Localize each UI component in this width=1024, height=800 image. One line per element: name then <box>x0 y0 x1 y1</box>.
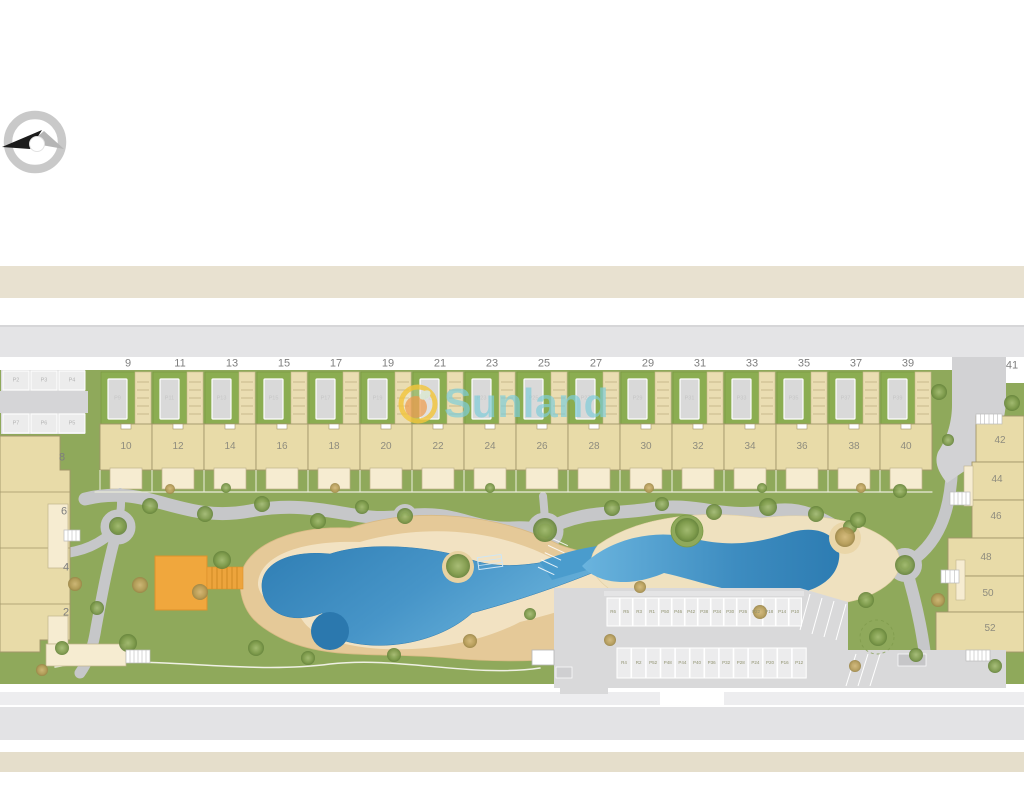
entry-notch <box>849 424 859 429</box>
tree <box>634 581 646 593</box>
parking-stall <box>792 648 806 678</box>
tree <box>301 651 315 665</box>
parking-stall <box>659 598 671 626</box>
tree <box>213 551 231 569</box>
parking-stall <box>59 371 85 390</box>
entry-notch <box>329 424 339 429</box>
tree <box>644 483 654 493</box>
entry-notch <box>121 424 131 429</box>
unit-block <box>516 424 568 470</box>
parking-stall <box>646 648 660 678</box>
parking-stall <box>661 648 675 678</box>
tree <box>942 434 954 446</box>
entry-notch <box>745 424 755 429</box>
parking-stall <box>59 414 85 433</box>
parking-pad <box>368 379 387 419</box>
parking-stall <box>776 598 788 626</box>
parking-stall <box>646 598 658 626</box>
tree <box>387 648 401 662</box>
terrace <box>578 468 610 489</box>
tree <box>463 634 477 648</box>
parking-stall <box>711 598 723 626</box>
parking-pad <box>316 379 335 419</box>
tree <box>835 527 855 547</box>
tree <box>869 628 887 646</box>
parking-stall <box>31 414 57 433</box>
entry-notch <box>225 424 235 429</box>
unit-block <box>412 424 464 470</box>
parking-stall <box>3 414 29 433</box>
parking-pad <box>212 379 231 419</box>
unit-block <box>256 424 308 470</box>
unit-block <box>724 424 776 470</box>
parking-pad <box>264 379 283 419</box>
tree <box>109 517 127 535</box>
road-edge-line <box>0 325 1024 327</box>
parking-stall <box>734 648 748 678</box>
tree <box>757 483 767 493</box>
tree <box>931 384 947 400</box>
lot-entrance <box>560 686 608 694</box>
terrace <box>526 468 558 489</box>
unit-block <box>152 424 204 470</box>
unit-block <box>100 424 152 470</box>
north-arrow-icon <box>0 103 72 180</box>
entry-notch <box>173 424 183 429</box>
parking-stall <box>748 648 762 678</box>
unit-block <box>620 424 672 470</box>
unit-block <box>880 424 932 470</box>
parking-stall <box>737 598 749 626</box>
tree <box>909 648 923 662</box>
tree <box>485 483 495 493</box>
tree <box>931 593 945 607</box>
tree <box>68 577 82 591</box>
corner-white <box>1006 357 1024 383</box>
entry-notch <box>641 424 651 429</box>
parking-stall <box>685 598 697 626</box>
tree <box>675 518 699 542</box>
parking-stall <box>31 371 57 390</box>
parking-pad <box>108 379 127 419</box>
tree <box>36 664 48 676</box>
unit-block <box>464 424 516 470</box>
terrace <box>422 468 454 489</box>
tree <box>132 577 148 593</box>
tree <box>55 641 69 655</box>
kiosk <box>556 667 572 678</box>
unit-block <box>308 424 360 470</box>
parking-stall <box>789 598 801 626</box>
entry-notch <box>433 424 443 429</box>
tree <box>850 512 866 528</box>
tree <box>604 500 620 516</box>
terrace <box>890 468 922 489</box>
parking-stall <box>620 598 632 626</box>
road-bottom-gray <box>0 707 1024 740</box>
unit-block <box>672 424 724 470</box>
entry-notch <box>537 424 547 429</box>
parking-stall <box>698 598 710 626</box>
tree <box>893 484 907 498</box>
tree <box>221 483 231 493</box>
parking-stall <box>724 598 736 626</box>
terrace <box>786 468 818 489</box>
tree <box>1004 395 1020 411</box>
tree <box>355 500 369 514</box>
site-plan-canvas: 41 9P91011P111213P131415P151617P171819P1… <box>0 0 1024 800</box>
tree <box>849 660 861 672</box>
parking-stall <box>632 648 646 678</box>
tree <box>533 518 557 542</box>
entry-notch <box>277 424 287 429</box>
entry-notch <box>589 424 599 429</box>
entry-notch <box>485 424 495 429</box>
tree <box>119 634 137 652</box>
playground-area <box>155 556 207 610</box>
tree <box>90 601 104 615</box>
tree <box>397 508 413 524</box>
tree <box>706 504 722 520</box>
road-top-beige <box>0 266 1024 298</box>
unit-block <box>828 424 880 470</box>
site-plan <box>0 0 1024 800</box>
parking-stall <box>617 648 631 678</box>
kiosk <box>532 650 554 665</box>
entry-notch <box>381 424 391 429</box>
parking-stall <box>675 648 689 678</box>
terrace <box>370 468 402 489</box>
tree <box>165 484 175 494</box>
parking-pad <box>524 379 543 419</box>
parking-pad <box>888 379 907 419</box>
tree <box>759 498 777 516</box>
parking-stall <box>672 598 684 626</box>
tree <box>858 592 874 608</box>
terrace <box>266 468 298 489</box>
parking-pad <box>160 379 179 419</box>
tree <box>330 483 340 493</box>
tree <box>192 584 208 600</box>
tree <box>753 605 767 619</box>
parking-pad <box>784 379 803 419</box>
parking-pad <box>576 379 595 419</box>
parking-stall <box>705 648 719 678</box>
entry-notch <box>901 424 911 429</box>
deep-pool-circle <box>311 612 349 650</box>
tree <box>310 513 326 529</box>
parking-pad <box>628 379 647 419</box>
parking-pad <box>732 379 751 419</box>
parking-stall <box>778 648 792 678</box>
terrace <box>682 468 714 489</box>
parking-stall <box>719 648 733 678</box>
building-footprint <box>972 500 1024 538</box>
terrace <box>48 616 68 644</box>
deck-grid <box>950 492 970 505</box>
parking-stall <box>763 648 777 678</box>
parking-pad <box>836 379 855 419</box>
parking-stall <box>633 598 645 626</box>
tree <box>604 634 616 646</box>
parking-pad <box>680 379 699 419</box>
parking-pad <box>420 379 439 419</box>
parking-stall <box>3 371 29 390</box>
tree <box>254 496 270 512</box>
numbers-strip <box>0 357 1024 370</box>
parking-stall <box>690 648 704 678</box>
tree <box>655 497 669 511</box>
road-top-gray <box>0 327 1024 357</box>
tree <box>197 506 213 522</box>
unit-block <box>568 424 620 470</box>
road-bottom-beige <box>0 752 1024 772</box>
entry-notch <box>693 424 703 429</box>
tree <box>142 498 158 514</box>
unit-block <box>776 424 828 470</box>
road-bottom-sidewalk-right <box>724 692 1024 705</box>
building-footprint <box>972 462 1024 500</box>
tree <box>446 554 470 578</box>
access-road <box>0 391 88 413</box>
lot-curb <box>604 591 804 596</box>
tree <box>524 608 536 620</box>
unit-block <box>204 424 256 470</box>
tree <box>248 640 264 656</box>
entry-notch <box>797 424 807 429</box>
tree <box>808 506 824 522</box>
parking-stall <box>607 598 619 626</box>
parking-pad <box>472 379 491 419</box>
tree <box>895 555 915 575</box>
terrace <box>110 468 142 489</box>
tree <box>856 483 866 493</box>
unit-block <box>360 424 412 470</box>
building-footprint <box>936 612 1024 652</box>
